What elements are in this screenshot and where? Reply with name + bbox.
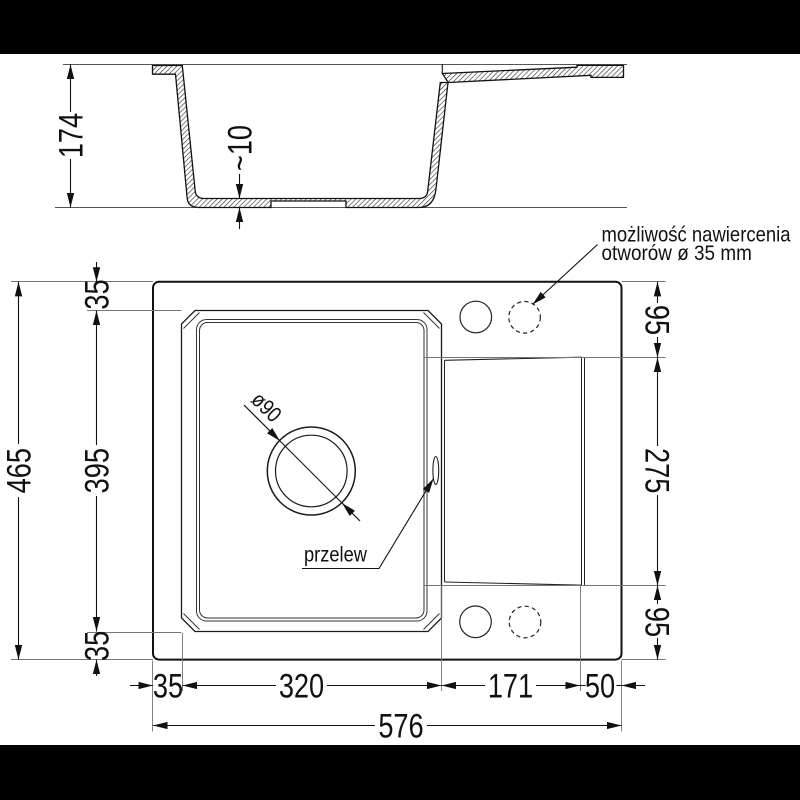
svg-text:171: 171 — [488, 667, 533, 706]
svg-text:przelew: przelew — [304, 543, 367, 567]
svg-text:otworów ø 35 mm: otworów ø 35 mm — [602, 242, 752, 265]
svg-text:275: 275 — [638, 448, 677, 493]
svg-text:35: 35 — [77, 279, 116, 309]
svg-text:95: 95 — [638, 607, 677, 637]
svg-text:50: 50 — [585, 667, 615, 706]
svg-text:320: 320 — [279, 667, 324, 706]
svg-text:465: 465 — [0, 448, 38, 493]
svg-text:35: 35 — [77, 631, 116, 661]
svg-text:174: 174 — [51, 113, 90, 158]
svg-text:576: 576 — [378, 706, 423, 745]
svg-text:35: 35 — [153, 667, 183, 706]
svg-text:395: 395 — [77, 448, 116, 493]
svg-text:~10: ~10 — [220, 125, 259, 171]
svg-text:95: 95 — [638, 305, 677, 335]
